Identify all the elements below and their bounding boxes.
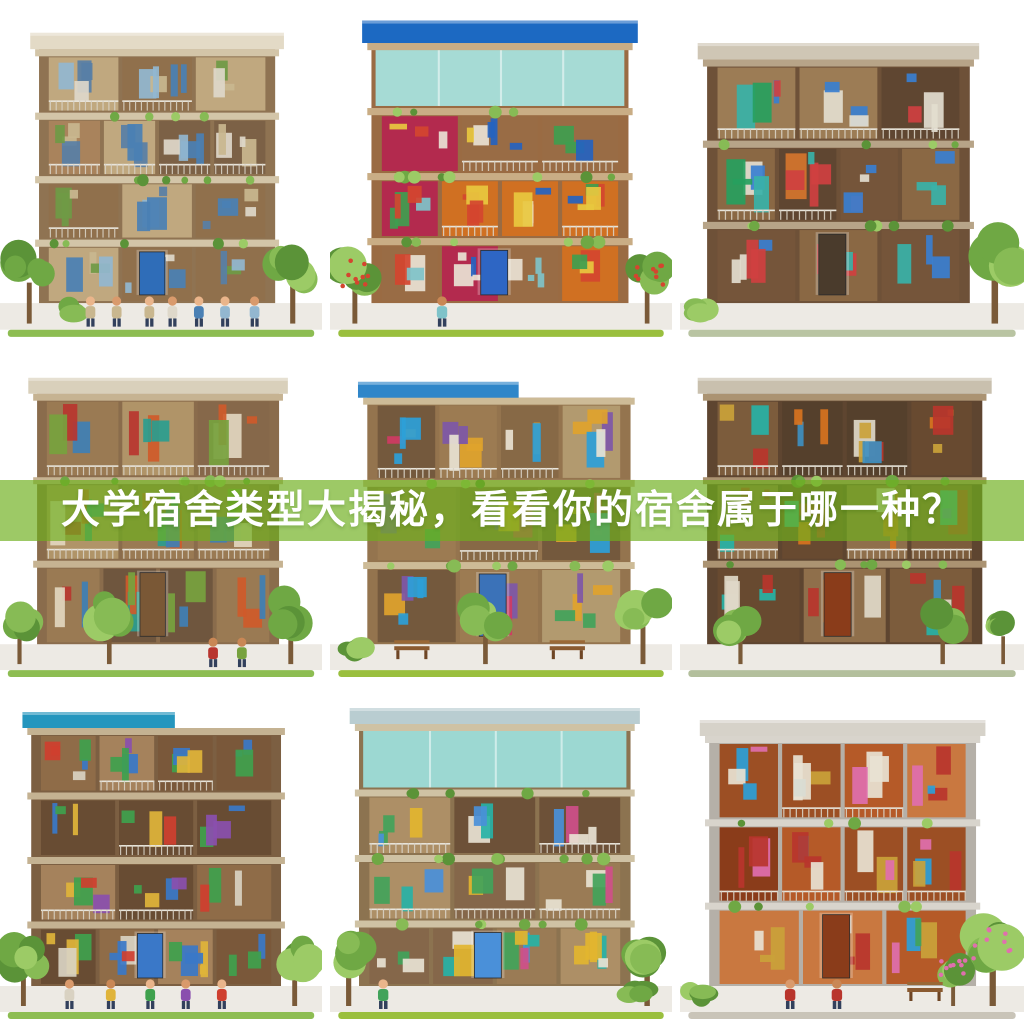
dorm-illustration-9	[680, 690, 1024, 1024]
building-illustration	[330, 0, 672, 342]
dorm-illustration-6	[680, 350, 1024, 682]
dorm-illustration-1	[0, 0, 322, 342]
dorm-illustration-5	[330, 350, 672, 682]
dorm-illustration-3	[680, 0, 1024, 342]
dorm-illustration-7	[0, 690, 322, 1024]
dorm-illustration-4	[0, 350, 322, 682]
building-illustration	[330, 690, 672, 1024]
building-illustration	[0, 690, 322, 1024]
illustration-grid	[0, 0, 1024, 1024]
building-illustration	[330, 350, 672, 682]
dorm-illustration-8	[330, 690, 672, 1024]
article-cover-image: 大学宿舍类型大揭秘，看看你的宿舍属于哪一种？	[0, 0, 1024, 1024]
building-illustration	[680, 690, 1024, 1024]
building-illustration	[0, 350, 322, 682]
building-illustration	[680, 0, 1024, 342]
building-illustration	[0, 0, 322, 342]
dorm-illustration-2	[330, 0, 672, 342]
building-illustration	[680, 350, 1024, 682]
